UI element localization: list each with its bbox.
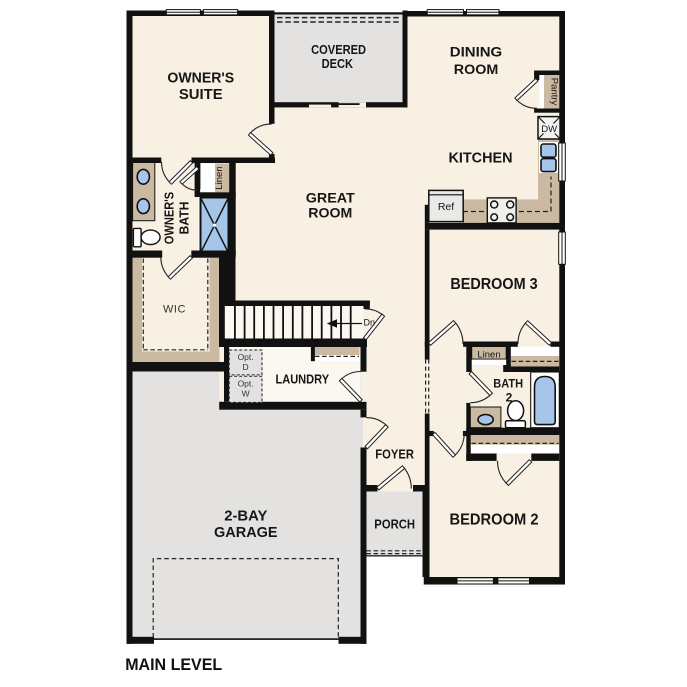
svg-text:2-BAY: 2-BAY	[224, 508, 267, 525]
svg-text:KITCHEN: KITCHEN	[448, 151, 512, 167]
svg-text:COVERED: COVERED	[311, 42, 366, 57]
svg-text:FOYER: FOYER	[375, 448, 414, 462]
svg-text:Pantry: Pantry	[549, 78, 560, 106]
svg-text:SUITE: SUITE	[179, 87, 223, 103]
svg-text:GARAGE: GARAGE	[214, 524, 278, 541]
svg-text:DINING: DINING	[450, 45, 502, 60]
svg-text:BEDROOM 3: BEDROOM 3	[450, 276, 538, 293]
svg-text:OWNER'S: OWNER'S	[167, 70, 234, 86]
svg-text:OWNER'S: OWNER'S	[163, 192, 177, 244]
svg-text:PORCH: PORCH	[374, 517, 415, 532]
svg-text:Opt.: Opt.	[238, 379, 254, 389]
svg-text:BATH: BATH	[178, 202, 192, 235]
svg-text:DW: DW	[541, 124, 557, 135]
svg-text:Linen: Linen	[214, 166, 225, 189]
svg-text:GREAT: GREAT	[306, 189, 355, 205]
svg-text:BATH: BATH	[493, 377, 523, 391]
svg-text:ROOM: ROOM	[308, 205, 352, 221]
svg-text:ROOM: ROOM	[454, 62, 499, 77]
svg-text:D: D	[243, 362, 249, 372]
svg-text:W: W	[242, 389, 250, 399]
svg-text:MAIN LEVEL: MAIN LEVEL	[125, 655, 222, 674]
svg-text:BEDROOM 2: BEDROOM 2	[450, 512, 539, 529]
svg-text:Ref: Ref	[438, 201, 454, 213]
svg-text:DECK: DECK	[322, 56, 354, 71]
svg-text:Opt.: Opt.	[238, 352, 254, 362]
svg-text:Dn: Dn	[364, 318, 376, 328]
svg-text:2: 2	[506, 390, 513, 404]
svg-text:WIC: WIC	[163, 304, 186, 316]
svg-text:LAUNDRY: LAUNDRY	[275, 372, 329, 387]
svg-text:Linen: Linen	[477, 349, 500, 360]
